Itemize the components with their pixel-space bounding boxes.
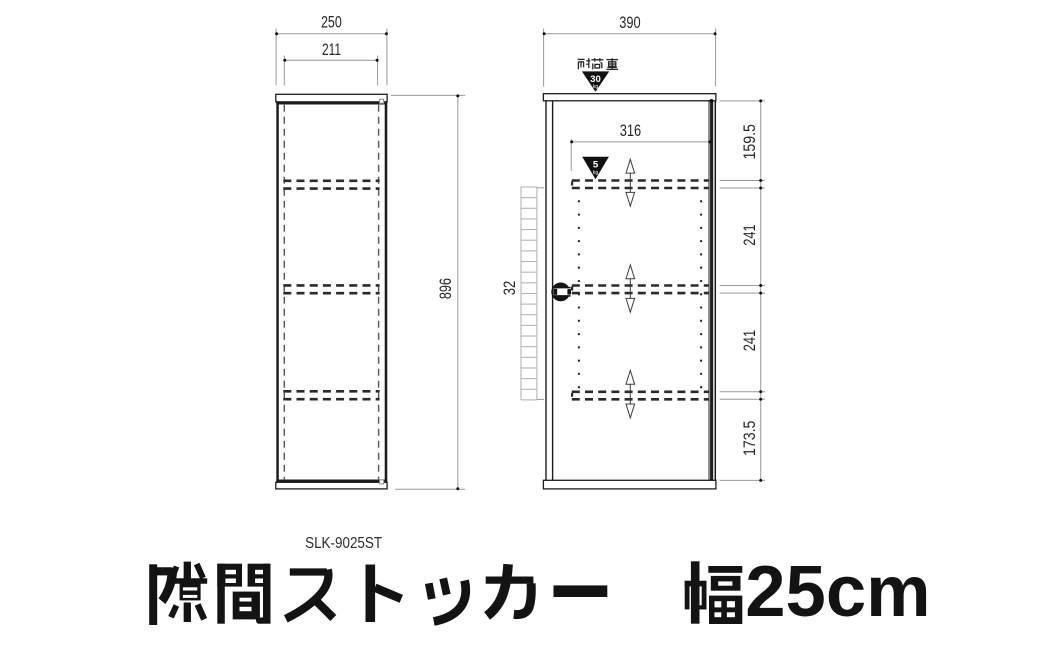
svg-text:241: 241 xyxy=(741,330,759,351)
svg-text:SLK-9025ST: SLK-9025ST xyxy=(305,535,382,552)
svg-text:211: 211 xyxy=(322,41,341,59)
svg-text:32: 32 xyxy=(501,281,519,296)
svg-text:316: 316 xyxy=(620,122,641,140)
svg-text:173.5: 173.5 xyxy=(741,421,759,457)
svg-text:250: 250 xyxy=(321,13,342,31)
svg-text:159.5: 159.5 xyxy=(741,124,759,160)
svg-text:241: 241 xyxy=(741,224,759,245)
svg-text:25cm: 25cm xyxy=(745,551,930,632)
svg-text:390: 390 xyxy=(619,14,640,32)
svg-text:kg: kg xyxy=(593,170,599,176)
svg-text:kg: kg xyxy=(593,84,599,90)
svg-text:896: 896 xyxy=(437,278,455,299)
